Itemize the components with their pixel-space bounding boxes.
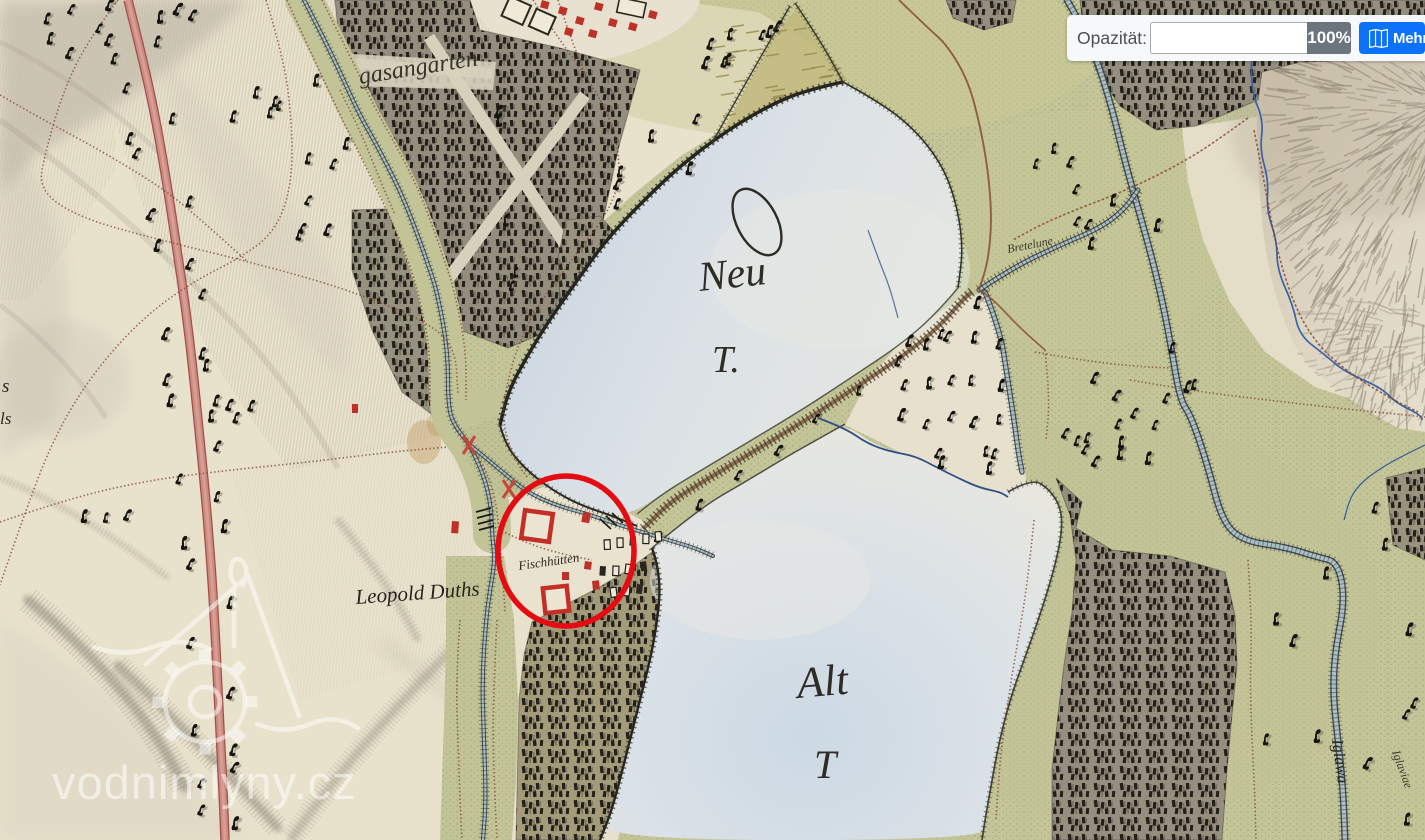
svg-text:vodnimlyny.cz: vodnimlyny.cz	[52, 756, 357, 809]
svg-text:T: T	[814, 742, 839, 787]
svg-text:ls: ls	[0, 409, 12, 428]
svg-text:Neu: Neu	[695, 248, 768, 301]
svg-text:T.: T.	[712, 339, 740, 381]
svg-text:Alt: Alt	[792, 655, 852, 709]
svg-text:s: s	[2, 376, 9, 397]
